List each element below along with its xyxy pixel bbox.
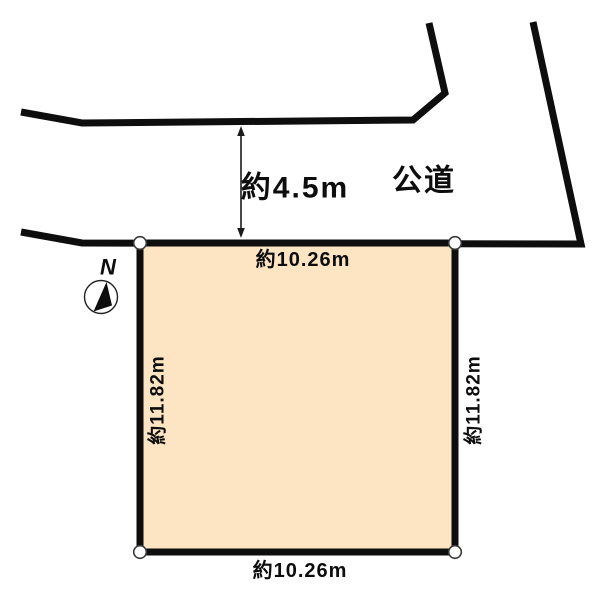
parcel-dimension-left: 約11.82m — [146, 355, 169, 444]
compass-icon: N — [85, 255, 118, 314]
parcel-dimension-top: 約10.26m — [256, 247, 351, 271]
corner-marker-top-left — [134, 237, 147, 250]
corner-marker-bottom-left — [134, 546, 147, 559]
compass-north-label: N — [100, 255, 117, 280]
corner-marker-top-right — [449, 237, 462, 250]
land-plot-diagram: 約4.5m 公道 約10.26m 約10.26m 約11.82m 約11.82m… — [0, 0, 600, 600]
road-edge-upper — [21, 23, 445, 123]
parcel-dimension-right: 約11.82m — [462, 355, 485, 444]
plot-diagram-canvas: 約4.5m 公道 約10.26m 約10.26m 約11.82m 約11.82m… — [0, 0, 600, 600]
road-edge-lower-right — [21, 22, 581, 244]
corner-marker-bottom-right — [449, 546, 462, 559]
land-parcel — [140, 243, 455, 552]
parcel-dimension-bottom: 約10.26m — [253, 558, 348, 582]
road-width-label: 約4.5m — [241, 172, 349, 205]
road-label: 公道 — [392, 165, 456, 198]
arrow-down-icon — [237, 228, 245, 238]
arrow-up-icon — [237, 126, 245, 136]
